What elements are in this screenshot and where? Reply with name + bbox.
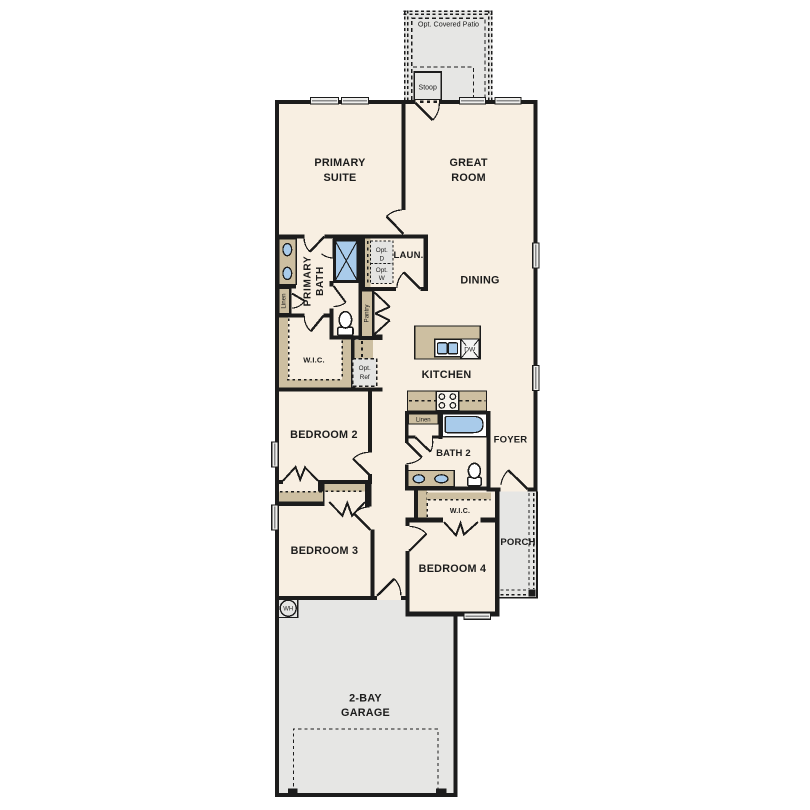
svg-text:BEDROOM 4: BEDROOM 4	[419, 563, 487, 575]
svg-text:W.I.C.: W.I.C.	[450, 508, 470, 515]
svg-text:PORCH: PORCH	[500, 537, 535, 548]
svg-text:Opt.: Opt.	[359, 365, 371, 372]
svg-text:2-BAY: 2-BAY	[349, 692, 382, 704]
svg-text:Ref: Ref	[360, 374, 370, 381]
svg-text:PRIMARY: PRIMARY	[303, 256, 314, 307]
svg-text:GARAGE: GARAGE	[341, 707, 390, 719]
svg-text:Stoop: Stoop	[419, 84, 437, 91]
svg-text:FOYER: FOYER	[494, 434, 528, 445]
svg-text:Linen: Linen	[281, 293, 288, 309]
svg-text:BEDROOM 3: BEDROOM 3	[291, 545, 359, 557]
svg-text:BATH 2: BATH 2	[436, 448, 471, 459]
svg-text:W: W	[379, 275, 386, 282]
svg-text:ROOM: ROOM	[451, 172, 486, 184]
svg-text:Opt.: Opt.	[376, 247, 388, 254]
svg-text:WH: WH	[283, 607, 293, 613]
svg-text:KITCHEN: KITCHEN	[422, 369, 472, 381]
svg-text:D: D	[379, 255, 384, 262]
svg-text:DINING: DINING	[460, 275, 499, 287]
svg-text:W.I.C.: W.I.C.	[303, 355, 325, 364]
svg-text:LAUN.: LAUN.	[393, 250, 423, 261]
svg-text:PRIMARY: PRIMARY	[314, 157, 366, 169]
svg-text:Opt.: Opt.	[376, 267, 388, 274]
svg-text:Opt. Covered Patio: Opt. Covered Patio	[418, 20, 479, 29]
svg-text:GREAT: GREAT	[449, 157, 487, 169]
svg-text:SUITE: SUITE	[323, 172, 356, 184]
svg-text:DW: DW	[464, 346, 476, 353]
svg-text:Pantry: Pantry	[363, 304, 370, 323]
svg-text:BEDROOM 2: BEDROOM 2	[290, 429, 358, 441]
svg-text:BATH: BATH	[315, 266, 326, 296]
svg-text:Linen: Linen	[416, 417, 431, 423]
